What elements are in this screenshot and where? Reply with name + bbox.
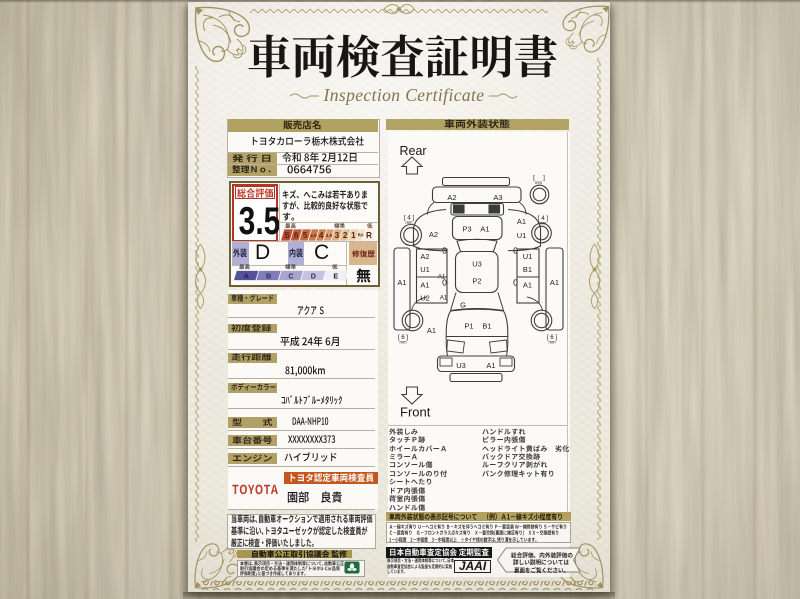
svg-text:B: B: [266, 271, 271, 280]
svg-text:3: 3: [335, 231, 340, 240]
svg-text:mm: mm: [406, 220, 413, 225]
svg-text:A2: A2: [420, 252, 429, 261]
svg-text:A1: A1: [397, 278, 406, 287]
svg-text:A1: A1: [523, 281, 532, 290]
svg-text:A2: A2: [447, 193, 456, 202]
svg-text:2: 2: [343, 231, 348, 240]
svg-text:S: S: [284, 231, 290, 240]
svg-text:P3: P3: [462, 225, 471, 234]
svg-text:5: 5: [303, 231, 308, 240]
svg-text:U1: U1: [420, 265, 430, 274]
svg-text:A2: A2: [429, 230, 438, 239]
svg-text:]: ]: [543, 175, 545, 182]
svg-text:R: R: [366, 231, 372, 240]
svg-text:Front: Front: [400, 405, 431, 420]
svg-text:1: 1: [351, 231, 356, 240]
svg-text:A: A: [244, 271, 249, 280]
svg-text:6: 6: [294, 231, 299, 240]
svg-text:mm: mm: [535, 180, 542, 185]
svg-text:P1: P1: [464, 322, 473, 331]
svg-text:U1: U1: [517, 231, 527, 240]
svg-text:A1: A1: [438, 274, 446, 281]
svg-text:U1: U1: [523, 252, 533, 261]
svg-text:Rear: Rear: [400, 144, 427, 158]
svg-text:mm: mm: [540, 221, 547, 226]
svg-text:A1: A1: [440, 295, 448, 302]
svg-text:A1: A1: [420, 281, 429, 290]
svg-text:A1: A1: [427, 326, 436, 335]
svg-text:4: 4: [319, 231, 324, 240]
svg-text:P2: P2: [472, 277, 481, 286]
svg-text:A3: A3: [493, 193, 502, 202]
svg-text:A1: A1: [486, 361, 495, 370]
svg-text:U2: U2: [420, 294, 430, 303]
svg-text:D: D: [311, 271, 316, 280]
svg-text:U3: U3: [456, 361, 466, 370]
svg-text:E: E: [333, 271, 338, 280]
svg-text:C: C: [288, 271, 293, 280]
svg-text:A1: A1: [550, 278, 559, 287]
svg-text:mm: mm: [549, 340, 556, 345]
svg-text:A1: A1: [480, 225, 489, 234]
svg-text:A1: A1: [517, 217, 526, 226]
svg-text:B1: B1: [523, 265, 532, 274]
svg-text:B1: B1: [482, 322, 491, 331]
svg-text:G: G: [460, 301, 466, 310]
svg-text:mm: mm: [400, 340, 407, 345]
svg-text:U3: U3: [472, 260, 482, 269]
